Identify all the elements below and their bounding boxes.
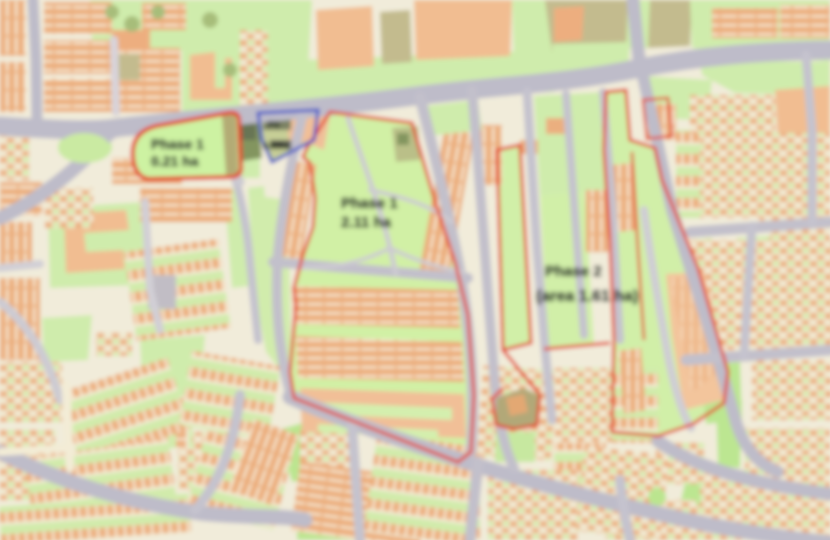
svg-text:Pit: Pit [268, 120, 280, 130]
svg-text:0.21 ha: 0.21 ha [151, 153, 199, 169]
svg-text:2.11 ha: 2.11 ha [341, 214, 392, 231]
svg-text:Phase 1: Phase 1 [151, 136, 204, 152]
svg-text:Phase 2: Phase 2 [545, 263, 602, 280]
svg-text:(area 1.61 ha): (area 1.61 ha) [536, 288, 638, 305]
svg-text:0.09ha: 0.09ha [263, 141, 292, 151]
svg-text:Phase 1: Phase 1 [341, 195, 398, 212]
